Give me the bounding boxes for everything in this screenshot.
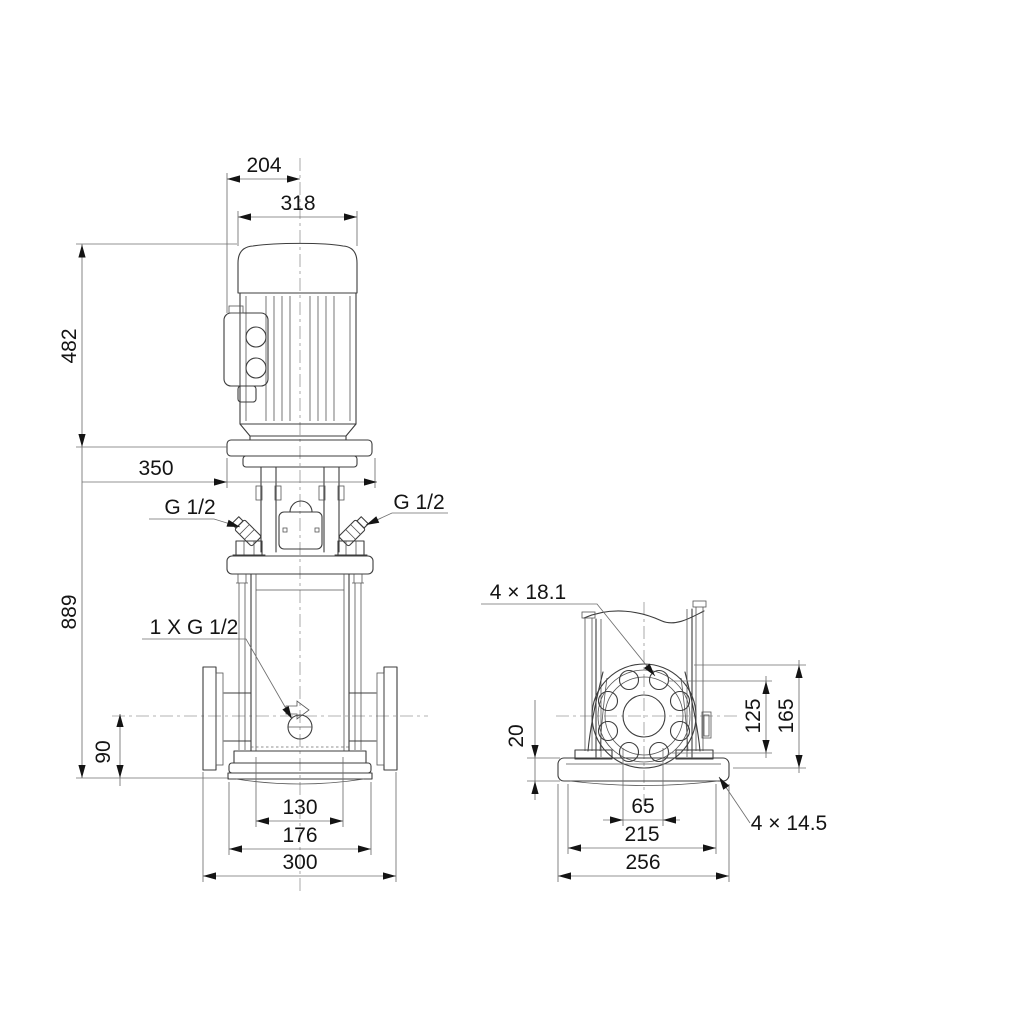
label-flange-holes: 4 × 18.1: [481, 581, 658, 678]
staybolt-nut-left: [233, 541, 265, 555]
dim-165: 165: [775, 660, 803, 773]
cable-gland-hole: [246, 358, 266, 378]
dim-256: 256: [558, 851, 729, 880]
dim-130: 130: [256, 796, 343, 825]
motor-body: [240, 293, 356, 440]
port-right-label: G 1/2: [393, 491, 444, 514]
label-drain-port: 1 X G 1/2: [142, 616, 295, 721]
base-holes-label: 4 × 14.5: [751, 812, 827, 835]
discharge-flange: [349, 667, 397, 770]
motor-fan-cover: [238, 243, 357, 293]
dim-125-label: 125: [742, 698, 765, 733]
dim-90: 90: [92, 714, 124, 786]
dimensions-side: 4 × 18.1 125 165 20 65: [481, 581, 827, 882]
dim-889: 889: [58, 594, 86, 778]
dim-20: 20: [505, 700, 539, 800]
dim-318-label: 318: [280, 192, 315, 215]
dim-90-label: 90: [92, 740, 115, 763]
dim-204: 204: [227, 154, 300, 183]
staybolt-nut-right: [335, 541, 367, 555]
suction-flange: [203, 667, 251, 770]
dim-215-label: 215: [624, 823, 659, 846]
port-left-label: G 1/2: [164, 496, 215, 519]
cable-gland-hole: [246, 327, 266, 347]
dim-350-label: 350: [138, 457, 173, 480]
priming-plug-left: [230, 515, 261, 546]
dim-130-label: 130: [282, 796, 317, 819]
dim-256-label: 256: [625, 851, 660, 874]
dim-300-label: 300: [282, 851, 317, 874]
label-port-left: G 1/2: [149, 496, 241, 530]
flange-holes-label: 4 × 18.1: [490, 581, 566, 604]
dim-65-label: 65: [631, 795, 654, 818]
dim-176-label: 176: [282, 824, 317, 847]
dim-20-label: 20: [505, 724, 528, 747]
pump-dimensional-drawing: 204 318 482 889 350 90: [0, 0, 1024, 1024]
front-view: [112, 158, 428, 893]
priming-plug-right: [339, 515, 370, 546]
dim-65: 65: [603, 795, 680, 824]
technical-drawing-page: 204 318 482 889 350 90: [0, 0, 1024, 1024]
dim-165-label: 165: [775, 698, 798, 733]
label-port-right: G 1/2: [364, 491, 448, 528]
label-base-holes: 4 × 14.5: [716, 775, 827, 835]
dim-300: 300: [203, 851, 396, 880]
dim-318: 318: [238, 192, 357, 221]
drain-plug: [286, 701, 312, 739]
dim-350: 350: [82, 457, 377, 486]
dim-482-label: 482: [58, 328, 81, 363]
dim-482: 482: [58, 244, 86, 778]
dim-889-label: 889: [58, 594, 81, 629]
dim-125: 125: [742, 676, 770, 758]
dim-215: 215: [568, 823, 716, 852]
drain-port-label: 1 X G 1/2: [150, 616, 239, 639]
coupling-guard: [279, 501, 322, 549]
dim-204-label: 204: [246, 154, 281, 177]
side-view: [556, 601, 737, 806]
